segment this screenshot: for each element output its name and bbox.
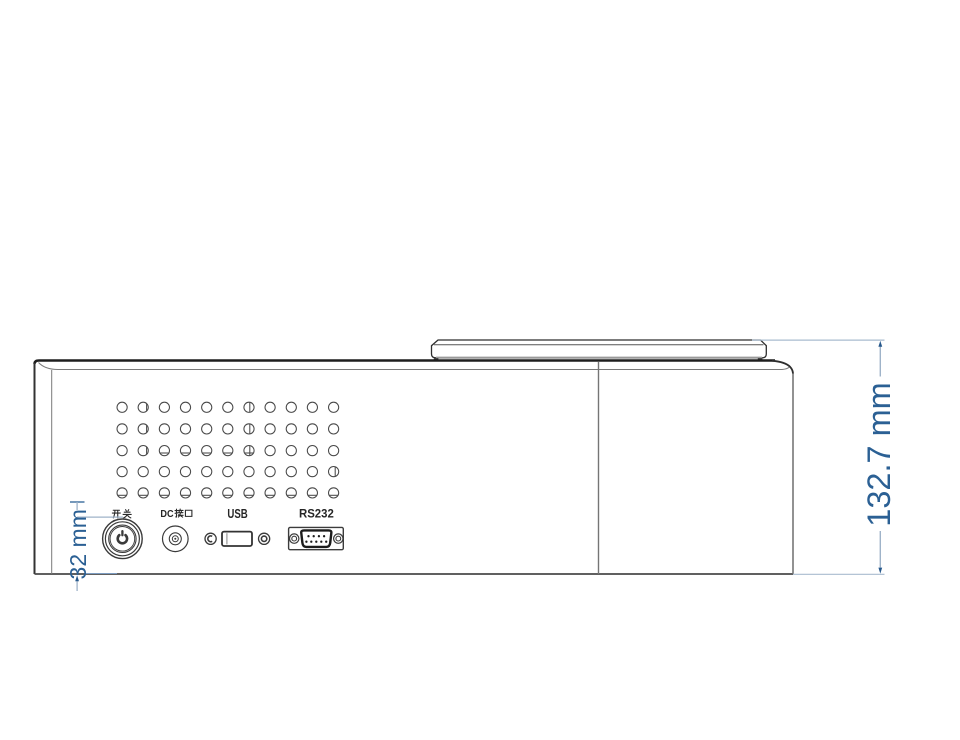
svg-text:USB: USB: [227, 507, 247, 521]
svg-text:32 mm: 32 mm: [65, 509, 91, 579]
svg-text:132.7 mm: 132.7 mm: [861, 382, 897, 527]
svg-text:RS232: RS232: [299, 508, 334, 520]
svg-text:DC: DC: [160, 508, 174, 520]
